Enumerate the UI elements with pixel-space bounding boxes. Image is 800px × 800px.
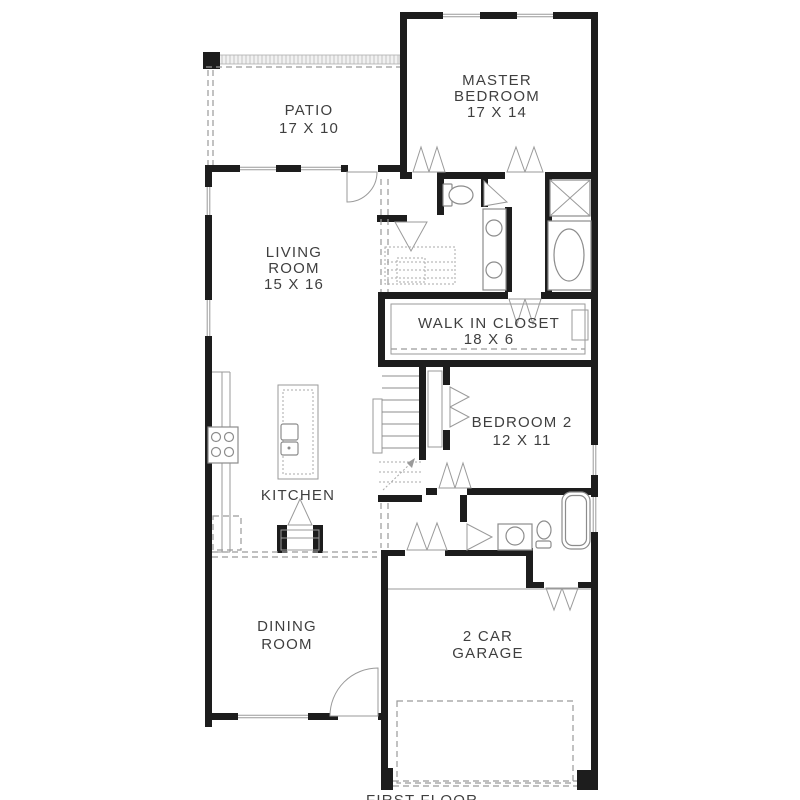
window-living-west-1 [205, 187, 212, 215]
wall-vestibule-south-b [578, 582, 591, 588]
window-living-west-2 [205, 300, 212, 336]
patio-label-line2: 17 X 10 [279, 120, 339, 137]
master-shower [550, 180, 590, 216]
dining-room-label-line2: ROOM [261, 636, 312, 653]
dressing-optional-outline [385, 247, 455, 284]
hall-garage-door-leaf-1 [407, 523, 427, 550]
wall-master-south-c [545, 172, 598, 179]
window-bath2-east [591, 497, 598, 532]
bedroom2-door-leaf-2 [455, 463, 471, 488]
pantry-post-left [277, 525, 287, 553]
bedroom2-closet-interior [428, 371, 442, 447]
master-bedroom-label-line1: MASTER [462, 72, 532, 89]
garage-post-right [577, 770, 598, 790]
wall-stairs-south [378, 495, 422, 502]
master-bathtub [548, 221, 591, 290]
wall-closet-north-b [541, 292, 598, 299]
living-room-label-line1: LIVING [266, 244, 322, 261]
garage-label-line2: GARAGE [452, 645, 523, 662]
wall-closet-south [378, 360, 598, 367]
hall-garage-door-leaf-2 [427, 523, 447, 550]
floor-plan-drawing: PATIO 17 X 10 MASTER BEDROOM 17 X 14 LIV… [0, 0, 800, 800]
window-living-north-2 [301, 165, 341, 172]
bed2-closet-bifold-1 [450, 387, 469, 407]
window-living-north-1 [240, 165, 276, 172]
master-bedroom-label-line3: 17 X 14 [467, 104, 527, 121]
vestibule-garage-door-leaf-2 [562, 588, 578, 610]
patio-door [347, 172, 377, 202]
garage-apron-outline [397, 701, 573, 783]
patio-label-line1: PATIO [285, 102, 334, 119]
pantry-post-right [313, 525, 323, 553]
bath2-bathtub [562, 492, 590, 549]
wall-bath2-west [460, 495, 467, 522]
window-master-1 [443, 12, 480, 19]
exterior-walls [205, 12, 598, 790]
wall-master-west [400, 12, 407, 172]
wall-master-south-b [444, 172, 505, 179]
floor-plan: PATIO 17 X 10 MASTER BEDROOM 17 X 14 LIV… [0, 0, 800, 800]
refrigerator-outline [213, 516, 241, 550]
first-floor-label: FIRST FLOOR [366, 792, 478, 800]
master-toilet-bowl [449, 186, 473, 204]
bath2-toilet-bowl [537, 521, 551, 539]
wall-master-south-a [400, 172, 412, 179]
living-room-label-line3: 15 X 16 [264, 276, 324, 293]
wall-garage-north-a [381, 550, 405, 556]
window-master-2 [517, 12, 553, 19]
patio-roof-band [206, 55, 400, 64]
wall-living-north-b [378, 165, 407, 172]
island-sink-1 [281, 424, 298, 440]
wall-closet-north-a [378, 292, 508, 299]
window-dining-south [238, 713, 308, 720]
stairs-rail [373, 399, 382, 453]
garage-label-line1: 2 CAR [463, 628, 513, 645]
bath2-fixtures [498, 492, 590, 550]
front-door [330, 668, 378, 716]
walk-in-closet-label-line1: WALK IN CLOSET [418, 315, 560, 332]
dashed-lines [212, 179, 577, 786]
wall-bed2-closet-b [443, 430, 450, 450]
master-hall-door-leaf-2 [429, 147, 445, 172]
dining-room-label-line1: DINING [257, 618, 317, 635]
wall-garage-west [381, 556, 388, 790]
wall-closet-west [378, 292, 385, 367]
kitchen-label: KITCHEN [261, 487, 335, 504]
wall-vestibule-south-a [526, 582, 544, 588]
bath2-sink [506, 527, 524, 545]
wall-east [591, 12, 598, 790]
bed2-closet-bifold-2 [450, 407, 469, 427]
master-corridor-door-leaf-2 [525, 147, 543, 172]
master-corridor-door-leaf-1 [507, 147, 525, 172]
living-room-label-line2: ROOM [268, 260, 319, 277]
wall-bed2-south-a [426, 488, 437, 495]
stairs [373, 376, 421, 490]
wall-stairs-east [419, 367, 426, 460]
toilet-room-door-leaf [484, 181, 507, 206]
wall-bed2-closet-a [443, 367, 450, 385]
stairs-treads [382, 376, 419, 448]
master-sink-1 [486, 220, 502, 236]
walk-in-closet-label-line2: 18 X 6 [464, 331, 515, 348]
master-sink-2 [486, 262, 502, 278]
bath2-door-leaf [467, 524, 492, 550]
garage-post-left [381, 768, 393, 790]
stairs-lower-dashed [379, 462, 421, 482]
window-bedroom2-east [591, 445, 598, 475]
bedroom2-label-line1: BEDROOM 2 [472, 414, 573, 431]
wall-garage-north-b [445, 550, 526, 556]
master-hall-door-leaf-1 [413, 147, 429, 172]
wall-master-north [400, 12, 598, 19]
bed2-closet-shelf [428, 371, 442, 447]
vestibule-garage-door-leaf-1 [546, 588, 562, 610]
bedroom2-door-leaf-1 [439, 463, 455, 488]
master-bedroom-label-line2: BEDROOM [454, 88, 540, 105]
bedroom2-label-line2: 12 X 11 [493, 432, 552, 449]
bath2-toilet-base [536, 541, 551, 548]
stove [208, 427, 238, 463]
closet-bench [572, 310, 588, 340]
kitchen-island [278, 385, 318, 479]
stairs-direction-arrow [383, 458, 415, 490]
